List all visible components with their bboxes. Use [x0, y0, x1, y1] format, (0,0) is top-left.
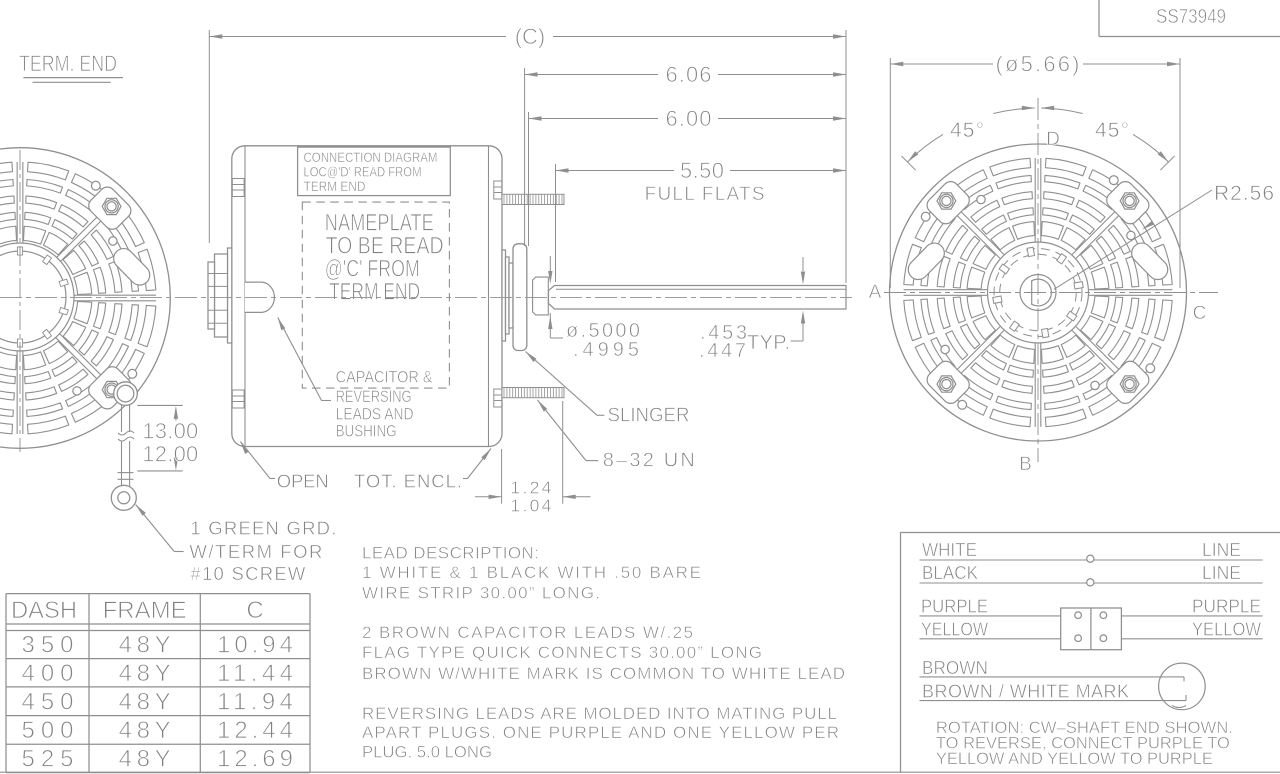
svg-text:8–32 UN: 8–32 UN [603, 450, 695, 472]
svg-text:11.44: 11.44 [217, 660, 293, 687]
svg-text:LEAD DESCRIPTION:: LEAD DESCRIPTION: [362, 544, 539, 563]
svg-text:1 WHITE & 1 BLACK WITH .50 BAR: 1 WHITE & 1 BLACK WITH .50 BARE [362, 563, 701, 582]
svg-text:10.94: 10.94 [217, 632, 293, 659]
svg-text:450: 450 [22, 689, 74, 716]
svg-text:YELLOW AND YELLOW TO PURPLE: YELLOW AND YELLOW TO PURPLE [936, 749, 1213, 768]
svg-text:TOT. ENCL.: TOT. ENCL. [354, 471, 462, 492]
svg-text:48Y: 48Y [119, 717, 171, 744]
svg-text:TERM END: TERM END [329, 279, 420, 306]
svg-text:DASH: DASH [11, 597, 77, 624]
svg-text:APART PLUGS. ONE PURPLE AND ON: APART PLUGS. ONE PURPLE AND ONE YELLOW P… [362, 723, 839, 742]
svg-text:PLUG. 5.0 LONG: PLUG. 5.0 LONG [362, 743, 492, 762]
svg-text:PURPLE: PURPLE [921, 597, 988, 617]
svg-text:TERM END: TERM END [304, 179, 366, 194]
svg-text:(C): (C) [515, 24, 546, 49]
svg-text:R2.56: R2.56 [1214, 182, 1274, 205]
svg-text:#10 SCREW: #10 SCREW [190, 563, 306, 584]
svg-text:OPEN: OPEN [277, 471, 329, 492]
svg-text:D: D [1046, 129, 1060, 150]
svg-text:.4995: .4995 [573, 339, 639, 361]
svg-text:FLAG TYPE QUICK CONNECTS 30.00: FLAG TYPE QUICK CONNECTS 30.00” LONG [362, 643, 762, 662]
svg-text:CAPACITOR &: CAPACITOR & [336, 369, 433, 387]
svg-text:LOC@'D' READ FROM: LOC@'D' READ FROM [304, 165, 422, 180]
svg-text:TERM. END: TERM. END [19, 51, 117, 76]
svg-text:400: 400 [22, 660, 74, 687]
svg-text:BROWN: BROWN [922, 658, 988, 678]
svg-text:SLINGER: SLINGER [608, 405, 690, 427]
svg-text:12.69: 12.69 [217, 746, 293, 773]
svg-text:C: C [1193, 303, 1207, 324]
svg-text:48Y: 48Y [119, 660, 171, 687]
svg-text:FULL FLATS: FULL FLATS [645, 184, 765, 205]
svg-text:525: 525 [22, 746, 74, 773]
svg-text:6.00: 6.00 [666, 106, 712, 131]
svg-text:1 GREEN GRD.: 1 GREEN GRD. [190, 518, 336, 539]
svg-text:48Y: 48Y [119, 689, 171, 716]
svg-text:C: C [246, 597, 263, 624]
svg-text:LINE: LINE [1202, 540, 1241, 560]
svg-text:WHITE: WHITE [922, 540, 977, 560]
svg-text:W/TERM FOR: W/TERM FOR [189, 541, 322, 562]
svg-text:FRAME: FRAME [103, 597, 187, 624]
svg-text:LINE: LINE [1202, 563, 1241, 583]
svg-text:REVERSING LEADS ARE MOLDED INT: REVERSING LEADS ARE MOLDED INTO MATING P… [362, 704, 837, 723]
svg-text:BLACK: BLACK [922, 563, 978, 583]
svg-text:2 BROWN CAPACITOR LEADS W/.25: 2 BROWN CAPACITOR LEADS W/.25 [362, 623, 693, 642]
svg-text:CONNECTION DIAGRAM: CONNECTION DIAGRAM [304, 150, 438, 165]
svg-text:45°: 45° [1095, 119, 1129, 142]
svg-text:BROWN / WHITE MARK: BROWN / WHITE MARK [922, 682, 1129, 702]
svg-text:B: B [1019, 454, 1032, 475]
svg-text:SS73949: SS73949 [1156, 6, 1226, 28]
svg-text:PURPLE: PURPLE [1192, 597, 1261, 617]
svg-text:YELLOW: YELLOW [1192, 620, 1261, 640]
svg-text:48Y: 48Y [119, 632, 171, 659]
svg-text:A: A [869, 282, 882, 303]
svg-text:11.94: 11.94 [217, 689, 293, 716]
svg-text:12.44: 12.44 [217, 717, 293, 744]
svg-text:5.50: 5.50 [680, 158, 724, 183]
svg-text:350: 350 [22, 632, 74, 659]
svg-text:6.06: 6.06 [666, 62, 712, 87]
svg-text:48Y: 48Y [119, 746, 171, 773]
svg-text:REVERSING: REVERSING [336, 388, 412, 406]
svg-text:13.00: 13.00 [142, 419, 198, 444]
svg-text:500: 500 [22, 717, 74, 744]
svg-text:BROWN W/WHITE MARK IS COMMON T: BROWN W/WHITE MARK IS COMMON TO WHITE LE… [362, 664, 845, 683]
svg-text:(ø5.66): (ø5.66) [996, 52, 1080, 77]
svg-text:BUSHING: BUSHING [336, 423, 397, 441]
svg-text:45°: 45° [950, 119, 984, 142]
svg-text:TYP.: TYP. [747, 332, 790, 354]
svg-text:1.24: 1.24 [510, 477, 551, 497]
svg-text:YELLOW: YELLOW [921, 620, 988, 640]
svg-text:1.04: 1.04 [510, 496, 551, 516]
svg-text:LEADS AND: LEADS AND [336, 405, 414, 423]
svg-text:12.00: 12.00 [142, 442, 198, 467]
